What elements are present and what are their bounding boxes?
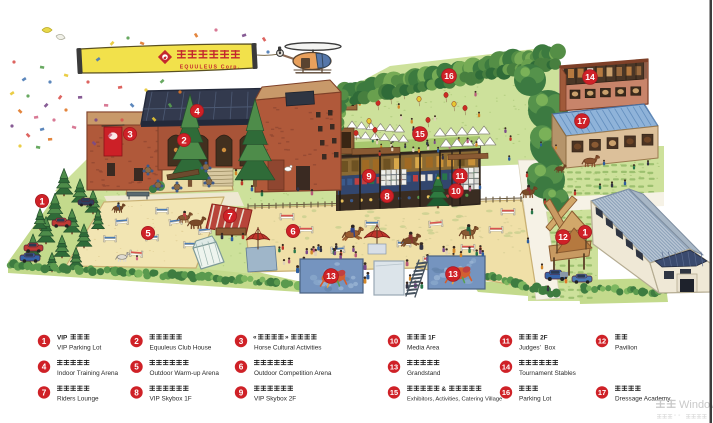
svg-text:8: 8 xyxy=(384,192,390,203)
svg-text:2: 2 xyxy=(181,136,186,147)
svg-text:Outdoor Warm-up Arena: Outdoor Warm-up Arena xyxy=(150,370,220,377)
svg-text:13: 13 xyxy=(326,271,336,281)
svg-text:Tournament Stables: Tournament Stables xyxy=(519,370,576,377)
svg-text:9: 9 xyxy=(239,388,244,397)
svg-text:Grandstand: Grandstand xyxy=(407,370,441,377)
svg-text:" ": " " xyxy=(674,415,682,421)
svg-text:8: 8 xyxy=(134,388,139,397)
svg-text:6: 6 xyxy=(290,227,295,238)
svg-text:5: 5 xyxy=(145,229,151,240)
svg-text:Dressage Academy: Dressage Academy xyxy=(615,396,671,403)
svg-text:Judges' Box: Judges' Box xyxy=(519,344,556,351)
svg-text:9: 9 xyxy=(366,172,371,183)
svg-text:12: 12 xyxy=(558,232,568,242)
svg-text:Indoor Training Arena: Indoor Training Arena xyxy=(57,370,119,377)
svg-text:Exhibitors, Activities, Cateri: Exhibitors, Activities, Catering Village xyxy=(407,397,502,403)
svg-text:VIP Parking Lot: VIP Parking Lot xyxy=(57,344,102,351)
svg-text:12: 12 xyxy=(598,337,606,346)
svg-text:16: 16 xyxy=(502,388,510,397)
svg-text:3: 3 xyxy=(127,130,132,141)
svg-text:11: 11 xyxy=(502,337,510,346)
svg-text:13: 13 xyxy=(390,362,398,371)
svg-text:10: 10 xyxy=(451,186,461,196)
svg-text:4: 4 xyxy=(194,107,200,118)
svg-text:11: 11 xyxy=(455,171,464,181)
svg-text:EQUULEUS Corp.: EQUULEUS Corp. xyxy=(180,65,241,71)
svg-text:Pavilion: Pavilion xyxy=(615,344,638,351)
svg-text:1: 1 xyxy=(39,197,45,208)
svg-text:Equuleus Club House: Equuleus Club House xyxy=(150,344,212,351)
svg-text:Windows: Windows xyxy=(679,399,713,411)
svg-text:Horse Cultural Activities: Horse Cultural Activities xyxy=(254,344,321,351)
svg-text:2: 2 xyxy=(134,337,139,346)
svg-text:1: 1 xyxy=(42,337,47,346)
svg-text:7: 7 xyxy=(42,388,47,397)
svg-text:15: 15 xyxy=(415,129,425,139)
svg-text:VIP: VIP xyxy=(57,334,68,341)
svg-text:4: 4 xyxy=(42,363,47,372)
svg-text:Riders Lounge: Riders Lounge xyxy=(57,396,99,403)
svg-text:1F: 1F xyxy=(428,334,436,341)
svg-text:14: 14 xyxy=(585,72,595,82)
svg-text:Parking Lot: Parking Lot xyxy=(519,396,552,403)
svg-text:6: 6 xyxy=(239,363,244,372)
svg-text:»: » xyxy=(285,334,289,341)
svg-text:1: 1 xyxy=(582,228,588,239)
svg-text:7: 7 xyxy=(227,212,232,223)
svg-text:VIP Skybox 1F: VIP Skybox 1F xyxy=(150,396,192,403)
svg-text:17: 17 xyxy=(598,388,606,397)
svg-text:&: & xyxy=(442,386,447,393)
svg-text:14: 14 xyxy=(502,362,511,371)
svg-text:17: 17 xyxy=(577,116,587,126)
svg-text:Media Area: Media Area xyxy=(407,344,440,351)
svg-text:VIP Skybox 2F: VIP Skybox 2F xyxy=(254,396,296,403)
svg-text:13: 13 xyxy=(448,269,458,279)
svg-text:10: 10 xyxy=(390,337,398,346)
svg-text:3: 3 xyxy=(239,337,244,346)
svg-text:«: « xyxy=(253,334,257,341)
svg-text:5: 5 xyxy=(134,363,139,372)
svg-text:2F: 2F xyxy=(540,334,548,341)
svg-text:16: 16 xyxy=(444,71,454,81)
svg-text:15: 15 xyxy=(390,388,398,397)
svg-text:Outdoor Competition Arena: Outdoor Competition Arena xyxy=(254,370,332,377)
